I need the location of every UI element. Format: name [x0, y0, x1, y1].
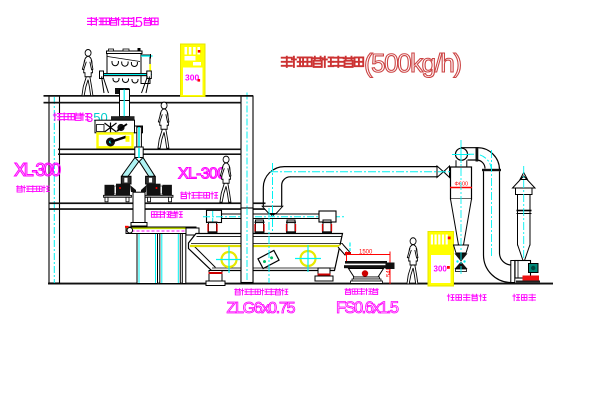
- svg-text:XL-300: XL-300: [14, 160, 61, 180]
- svg-text:1500: 1500: [359, 250, 373, 256]
- svg-text:300: 300: [434, 264, 448, 273]
- svg-text:ZLG6x0.75: ZLG6x0.75: [227, 300, 296, 317]
- svg-text:FS0.6x1.5: FS0.6x1.5: [336, 299, 399, 317]
- svg-text:XL-300: XL-300: [178, 166, 226, 183]
- svg-text:(500kg/h): (500kg/h): [364, 48, 462, 78]
- svg-text:300: 300: [185, 72, 199, 82]
- svg-text:1.5: 1.5: [130, 15, 144, 31]
